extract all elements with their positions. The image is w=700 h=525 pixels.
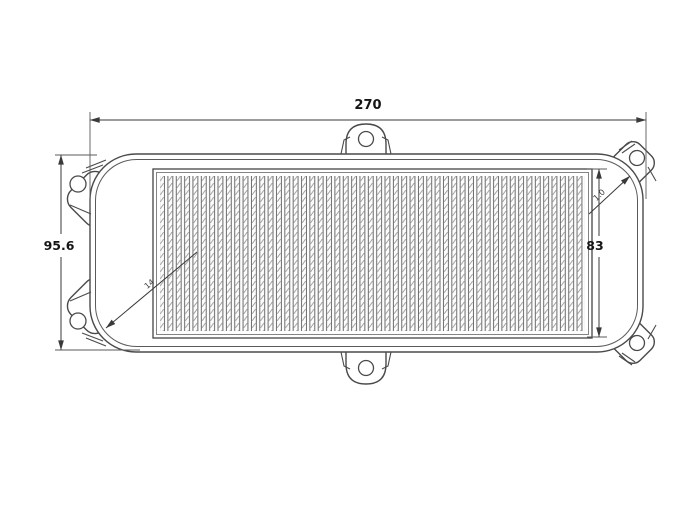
mounting-tab-bottom bbox=[346, 350, 386, 384]
drawing-page: 270 95.6 83 14 1.0 bbox=[0, 0, 700, 525]
mounting-hole-bottom bbox=[359, 361, 374, 376]
media-height-value: 83 bbox=[586, 238, 603, 253]
mounting-hole-bottom-left bbox=[70, 313, 86, 329]
technical-drawing-canvas: 270 95.6 83 14 1.0 bbox=[0, 0, 700, 525]
pleat-pattern bbox=[160, 176, 585, 331]
mounting-hole-bottom-right bbox=[630, 336, 645, 351]
overall-width-value: 270 bbox=[354, 98, 381, 113]
mounting-hole-top bbox=[359, 132, 374, 147]
mounting-hole-top-right bbox=[630, 151, 645, 166]
overall-height-value: 95.6 bbox=[44, 238, 75, 253]
filter-media bbox=[153, 169, 592, 338]
mounting-tab-top bbox=[346, 124, 386, 156]
mounting-hole-top-left bbox=[70, 176, 86, 192]
